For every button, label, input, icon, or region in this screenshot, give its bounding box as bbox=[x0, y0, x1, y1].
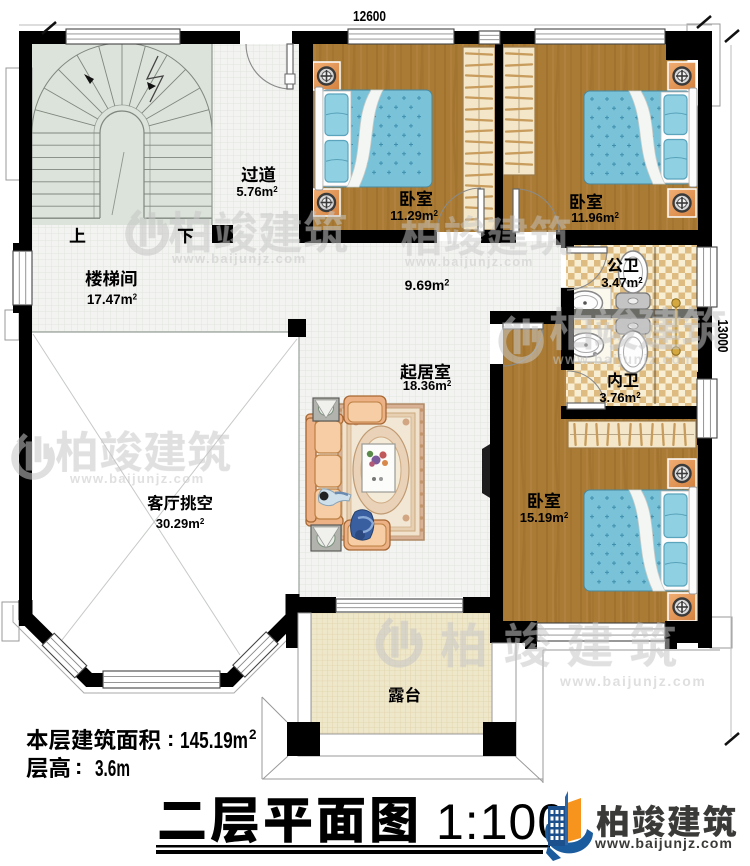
svg-text:3.76m2: 3.76m2 bbox=[599, 390, 641, 405]
svg-text:17.47m2: 17.47m2 bbox=[87, 292, 138, 307]
svg-text:www.baijunjz.com: www.baijunjz.com bbox=[594, 835, 733, 851]
svg-text:www.baijunjz.com: www.baijunjz.com bbox=[552, 352, 695, 367]
svg-text:3.6m: 3.6m bbox=[95, 755, 130, 781]
svg-text::: : bbox=[167, 726, 174, 751]
svg-text:2: 2 bbox=[249, 727, 257, 742]
svg-text:15.19m2: 15.19m2 bbox=[520, 510, 569, 525]
svg-text:11.29m2: 11.29m2 bbox=[390, 208, 438, 223]
svg-text:www.baijunjz.com: www.baijunjz.com bbox=[171, 251, 307, 266]
svg-text:www.baijunjz.com: www.baijunjz.com bbox=[404, 255, 534, 269]
svg-text:30.29m2: 30.29m2 bbox=[156, 516, 205, 531]
svg-text::: : bbox=[75, 754, 82, 779]
svg-text:www.baijunjz.com: www.baijunjz.com bbox=[69, 471, 205, 486]
svg-text:13000: 13000 bbox=[714, 320, 730, 353]
svg-text:12600: 12600 bbox=[353, 9, 386, 25]
svg-text:3.47m2: 3.47m2 bbox=[601, 275, 643, 290]
svg-text:9.69m2: 9.69m2 bbox=[405, 277, 450, 293]
svg-text:5.76m2: 5.76m2 bbox=[236, 184, 278, 199]
svg-text:18.36m2: 18.36m2 bbox=[403, 378, 452, 393]
svg-text:11.96m2: 11.96m2 bbox=[571, 210, 619, 225]
svg-text:1:100: 1:100 bbox=[436, 794, 566, 850]
svg-text:www.baijunjz.com: www.baijunjz.com bbox=[559, 673, 706, 689]
svg-text:145.19m: 145.19m bbox=[180, 727, 248, 753]
